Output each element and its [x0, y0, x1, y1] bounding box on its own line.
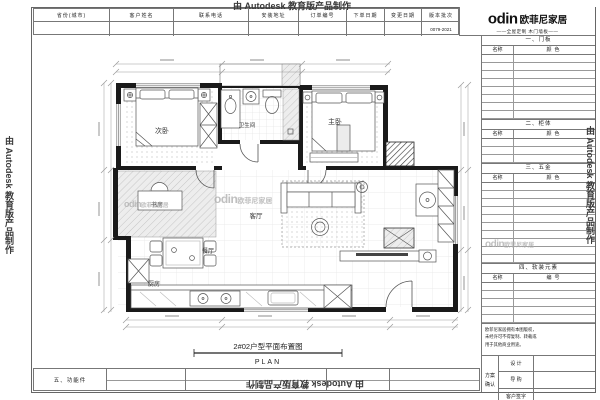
- header-label: 变更日期: [385, 9, 422, 22]
- empty-rows: [482, 55, 595, 120]
- plan-subtitle: PLAN: [255, 359, 281, 366]
- room-label-master-bedroom: 主卧: [328, 117, 342, 126]
- autodesk-watermark-top: 由 Autodesk 教育版产品制作: [233, 0, 351, 12]
- confirm-label-line: 确认: [485, 381, 495, 388]
- col-name: 名称: [482, 130, 514, 138]
- autodesk-watermark-bottom: 由 Autodesk 教育版产品制作: [225, 378, 385, 391]
- section-title-cabinets: 二、柜体: [482, 120, 595, 130]
- header-value-cell: [174, 22, 249, 36]
- drawing-sheet: 次卧 卫生间 主卧 书房 客厅 餐厅 厨房 2#02户型平面布置图 PLAN 省…: [0, 0, 600, 400]
- signature-row-label: 设 计: [499, 356, 534, 371]
- signature-row-customer: 客户签字: [499, 389, 595, 400]
- header-label: 省份(城市): [34, 9, 110, 22]
- odin-watermark-brand: odin: [124, 199, 141, 209]
- header-value-cell: [34, 22, 110, 36]
- notice-line: 未经许可不得复制、转载或: [485, 333, 592, 340]
- section-title-soft-furnishing: 四、软装元素: [482, 264, 595, 274]
- col-name: 名称: [482, 174, 514, 182]
- copyright-notice: 欧菲尼家居拥有本图版权， 未经许可不得复制、转载或 用于其他商业用途。: [482, 324, 595, 356]
- col-color: 颜色: [514, 174, 595, 182]
- odin-watermark-company: 欧菲尼家居: [141, 203, 169, 209]
- section-columns: 名称 颜色: [482, 130, 595, 139]
- brand-tagline: ——全屋定制 木门墙板——: [460, 29, 595, 35]
- odin-watermark: odin欧菲尼家居: [124, 194, 169, 212]
- confirm-label-line: 方案: [485, 372, 495, 379]
- signature-row-label: 导 购: [499, 372, 534, 387]
- header-value-cell: [347, 22, 385, 36]
- autodesk-watermark-right: 由 Autodesk 教育版产品制作: [584, 126, 597, 244]
- odin-watermark-brand: odin: [214, 192, 237, 206]
- plan-title: 2#02户型平面布置图: [233, 341, 302, 351]
- signature-row-designer: 设 计: [499, 356, 595, 372]
- room-secondary-bedroom: [124, 88, 217, 148]
- section-columns: 名称 颜色: [482, 174, 595, 183]
- odin-watermark: odin欧菲尼家居: [214, 190, 272, 208]
- header-value-cell: [249, 22, 299, 36]
- brand-logo: odin欧菲尼家居 ——全屋定制 木门墙板——: [459, 7, 595, 36]
- functional-parts-cell: [107, 369, 186, 390]
- col-color: 颜色: [514, 130, 595, 138]
- signature-block: 方案 确认 设 计 导 购 客户签字: [482, 356, 595, 400]
- header-label: 客户姓名: [110, 9, 174, 22]
- odin-watermark-company: 欧菲尼家居: [504, 243, 534, 249]
- header-value-cell: [110, 22, 174, 36]
- header-label: 下单日期: [347, 9, 385, 22]
- signature-row-value: [534, 389, 595, 400]
- signature-row-value: [534, 372, 595, 387]
- notice-line: 欧菲尼家居拥有本图版权，: [485, 326, 592, 333]
- odin-watermark: odin欧菲尼家居: [485, 234, 534, 252]
- col-name: 名称: [482, 46, 514, 54]
- signature-row-label: 客户签字: [499, 389, 534, 400]
- brand-company-name: 欧菲尼家居: [520, 15, 568, 26]
- spec-sidebar: 一、门板 名称 颜色 二、柜体 名称 颜色 三、五金 名称 颜色 四、软装元素 …: [481, 36, 595, 392]
- header-value-cell: [385, 22, 422, 36]
- header-label: 版本批次: [422, 9, 460, 22]
- room-label-bathroom: 卫生间: [239, 121, 256, 129]
- autodesk-watermark-left: 由 Autodesk 教育版产品制作: [3, 136, 16, 254]
- confirm-label: 方案 确认: [482, 356, 499, 400]
- section-columns: 名称 编号: [482, 274, 595, 283]
- functional-parts-cell: [390, 369, 479, 390]
- room-label-kitchen: 厨房: [148, 280, 160, 288]
- col-name: 名称: [482, 274, 514, 282]
- empty-rows: [482, 283, 595, 324]
- header-table: 省份(城市) 客户姓名 联系电话 安装地址 订单编号 下单日期 变更日期 版本批…: [33, 8, 459, 35]
- empty-rows: [482, 139, 595, 164]
- section-title-hardware: 三、五金: [482, 164, 595, 174]
- odin-watermark-company: 欧菲尼家居: [237, 198, 272, 205]
- header-value-cell: [299, 22, 347, 36]
- col-code: 编号: [514, 274, 595, 282]
- room-label-living: 客厅: [250, 211, 264, 220]
- brand-wordmark: odin: [488, 10, 518, 27]
- signature-row-sales: 导 购: [499, 372, 595, 388]
- functional-parts-label: 五、功能件: [34, 369, 107, 390]
- header-value-version: 0079-2021: [422, 22, 460, 36]
- section-title-doors: 一、门板: [482, 36, 595, 46]
- plan-title-block: 2#02户型平面布置图 PLAN: [194, 341, 342, 366]
- room-label-secondary-bedroom: 次卧: [155, 126, 169, 135]
- odin-watermark-brand: odin: [485, 239, 504, 250]
- notice-line: 用于其他商业用途。: [485, 341, 592, 348]
- section-columns: 名称 颜色: [482, 46, 595, 55]
- signature-row-value: [534, 356, 595, 371]
- room-label-dining: 餐厅: [202, 247, 214, 255]
- col-color: 颜色: [514, 46, 595, 54]
